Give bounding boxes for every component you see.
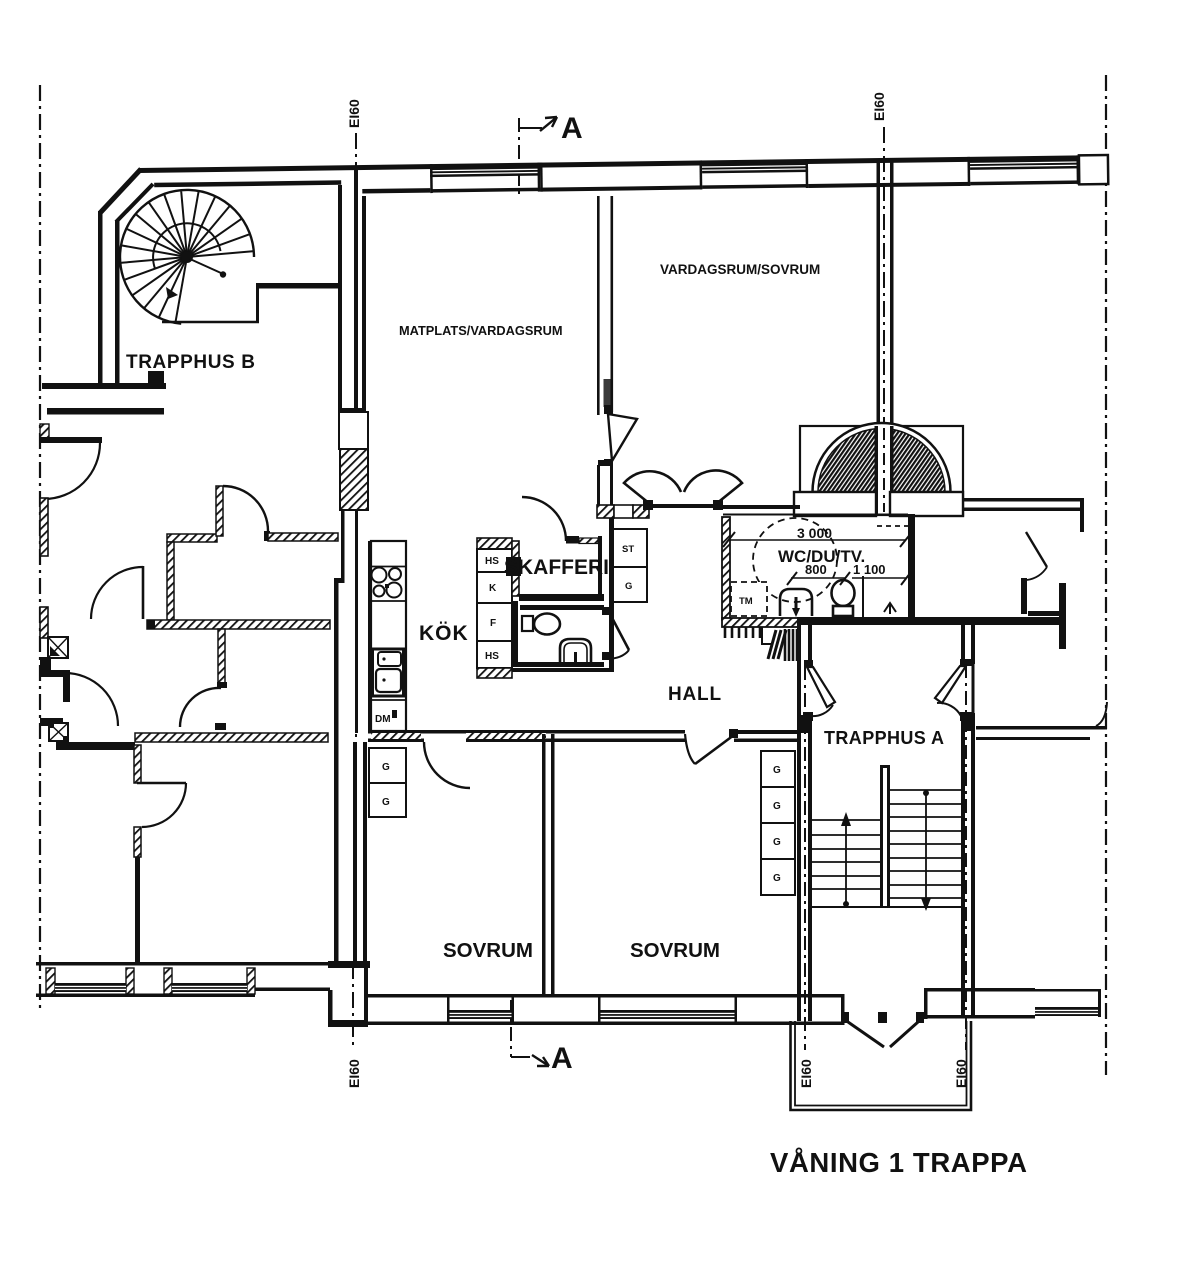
svg-text:EI60: EI60 xyxy=(871,92,887,121)
svg-text:G: G xyxy=(773,801,781,812)
svg-text:A: A xyxy=(561,112,583,145)
svg-text:EI60: EI60 xyxy=(346,1059,362,1088)
svg-text:HALL: HALL xyxy=(668,684,722,705)
svg-text:A: A xyxy=(551,1042,573,1075)
svg-text:G: G xyxy=(382,762,390,773)
svg-text:EI60: EI60 xyxy=(798,1059,814,1088)
svg-text:G: G xyxy=(773,765,781,776)
svg-text:KÖK: KÖK xyxy=(419,622,469,645)
svg-text:HS: HS xyxy=(485,651,499,662)
svg-text:VARDAGSRUM/SOVRUM: VARDAGSRUM/SOVRUM xyxy=(660,262,820,277)
svg-text:DM: DM xyxy=(375,714,391,725)
svg-text:ST: ST xyxy=(622,544,634,555)
svg-text:800: 800 xyxy=(805,562,827,577)
svg-text:EI60: EI60 xyxy=(346,99,362,128)
svg-text:VÅNING 1 TRAPPA: VÅNING 1 TRAPPA xyxy=(770,1147,1028,1178)
svg-text:TRAPPHUS B: TRAPPHUS B xyxy=(126,352,256,373)
svg-text:TRAPPHUS A: TRAPPHUS A xyxy=(824,728,944,748)
svg-text:TM: TM xyxy=(739,596,753,607)
svg-text:SOVRUM: SOVRUM xyxy=(630,939,720,962)
svg-text:G: G xyxy=(773,873,781,884)
svg-text:F: F xyxy=(490,618,496,629)
svg-text:HS: HS xyxy=(485,556,499,567)
svg-text:G: G xyxy=(773,837,781,848)
svg-text:1 100: 1 100 xyxy=(853,562,886,577)
svg-text:G: G xyxy=(625,581,632,592)
svg-text:SOVRUM: SOVRUM xyxy=(443,939,533,962)
svg-text:G: G xyxy=(382,797,390,808)
svg-text:SKAFFERI: SKAFFERI xyxy=(504,556,609,579)
svg-text:MATPLATS/VARDAGSRUM: MATPLATS/VARDAGSRUM xyxy=(399,323,563,338)
svg-text:3 000: 3 000 xyxy=(797,525,832,541)
svg-text:K: K xyxy=(489,583,497,594)
